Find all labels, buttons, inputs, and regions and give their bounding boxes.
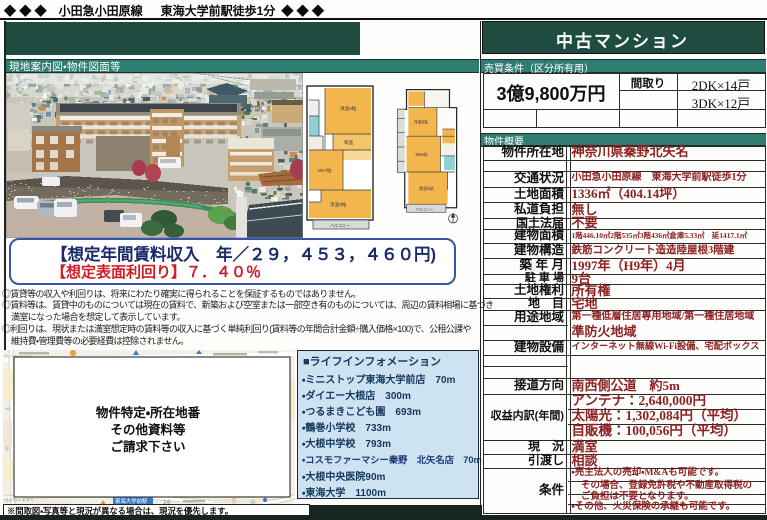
svg-text:バルコニー: バルコニー (330, 223, 350, 228)
svg-text:洋室6帖: 洋室6帖 (414, 119, 429, 125)
svg-text:バルコニー: バルコニー (415, 207, 433, 211)
svg-text:洋室6帖: 洋室6帖 (340, 105, 357, 112)
svg-text:洋室6帖: 洋室6帖 (330, 201, 347, 208)
svg-text:DK6帖: DK6帖 (415, 151, 427, 157)
svg-text:和室6帖: 和室6帖 (419, 185, 434, 191)
svg-text:和室: 和室 (344, 139, 354, 146)
svg-text:DK7帖: DK7帖 (318, 167, 332, 174)
